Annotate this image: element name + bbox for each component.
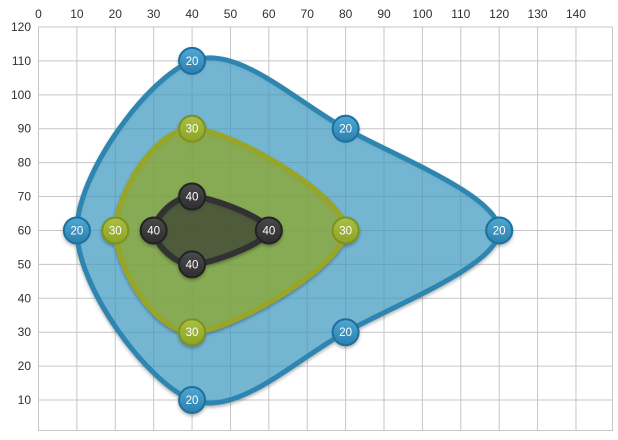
x-tick-label: 60 bbox=[262, 7, 276, 21]
marker-label: 20 bbox=[339, 327, 352, 339]
x-tick-label: 140 bbox=[566, 7, 586, 21]
contour-marker-20[interactable]: 20 bbox=[179, 48, 205, 74]
contour-marker-20[interactable]: 20 bbox=[333, 319, 359, 345]
x-tick-label: 40 bbox=[185, 7, 199, 21]
y-tick-label: 120 bbox=[11, 20, 31, 34]
y-tick-label: 50 bbox=[18, 257, 32, 271]
contour-marker-20[interactable]: 20 bbox=[179, 387, 205, 413]
x-tick-label: 20 bbox=[109, 7, 123, 21]
x-tick-label: 120 bbox=[489, 7, 509, 21]
y-tick-label: 10 bbox=[18, 393, 32, 407]
x-tick-label: 30 bbox=[147, 7, 161, 21]
chart-canvas: 0102030405060708090100110120130140120110… bbox=[0, 0, 618, 440]
contour-marker-20[interactable]: 20 bbox=[486, 217, 512, 243]
contour-marker-40[interactable]: 40 bbox=[256, 217, 282, 243]
marker-label: 20 bbox=[186, 56, 199, 68]
marker-label: 40 bbox=[186, 192, 199, 204]
y-tick-label: 30 bbox=[18, 325, 32, 339]
x-tick-label: 90 bbox=[377, 7, 391, 21]
x-tick-label: 80 bbox=[339, 7, 353, 21]
isoline-chart: 0102030405060708090100110120130140120110… bbox=[0, 0, 618, 440]
marker-label: 40 bbox=[147, 225, 160, 237]
marker-label: 30 bbox=[186, 124, 199, 136]
contour-marker-30[interactable]: 30 bbox=[333, 217, 359, 243]
marker-label: 40 bbox=[262, 225, 275, 237]
x-tick-label: 10 bbox=[70, 7, 84, 21]
marker-label: 20 bbox=[186, 395, 199, 407]
x-tick-label: 130 bbox=[528, 7, 548, 21]
y-tick-label: 60 bbox=[18, 223, 32, 237]
marker-label: 30 bbox=[109, 225, 122, 237]
y-tick-label: 110 bbox=[12, 54, 31, 68]
contour-marker-20[interactable]: 20 bbox=[64, 217, 90, 243]
contour-marker-30[interactable]: 30 bbox=[102, 217, 128, 243]
y-tick-label: 100 bbox=[11, 88, 31, 102]
marker-label: 20 bbox=[339, 124, 352, 136]
contour-marker-40[interactable]: 40 bbox=[179, 184, 205, 210]
x-tick-label: 110 bbox=[451, 7, 470, 21]
contour-marker-20[interactable]: 20 bbox=[333, 116, 359, 142]
y-tick-label: 70 bbox=[18, 190, 32, 204]
marker-label: 20 bbox=[493, 225, 506, 237]
contour-marker-40[interactable]: 40 bbox=[141, 217, 167, 243]
x-tick-label: 100 bbox=[412, 7, 432, 21]
marker-label: 30 bbox=[186, 327, 199, 339]
x-axis: 0102030405060708090100110120130140 bbox=[35, 7, 586, 21]
x-tick-label: 0 bbox=[35, 7, 42, 21]
contour-marker-30[interactable]: 30 bbox=[179, 116, 205, 142]
y-tick-label: 90 bbox=[18, 122, 32, 136]
contour-marker-30[interactable]: 30 bbox=[179, 319, 205, 345]
marker-label: 40 bbox=[186, 259, 199, 271]
y-tick-label: 40 bbox=[18, 291, 32, 305]
y-tick-label: 20 bbox=[18, 359, 32, 373]
y-tick-label: 80 bbox=[18, 156, 32, 170]
contour-marker-40[interactable]: 40 bbox=[179, 251, 205, 277]
marker-label: 30 bbox=[339, 225, 352, 237]
x-tick-label: 70 bbox=[301, 7, 315, 21]
y-axis: 120110100908070605040302010 bbox=[11, 20, 31, 407]
x-tick-label: 50 bbox=[224, 7, 238, 21]
marker-label: 20 bbox=[70, 225, 83, 237]
